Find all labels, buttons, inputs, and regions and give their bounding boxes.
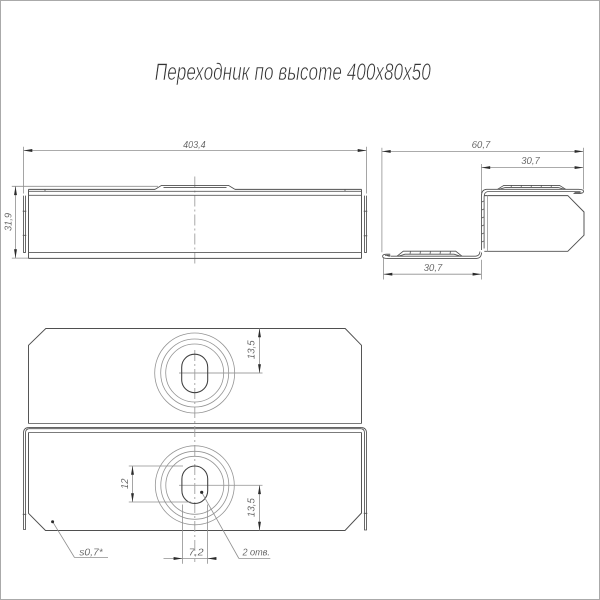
svg-text:13,5: 13,5 — [247, 340, 258, 360]
svg-text:60,7: 60,7 — [472, 140, 491, 151]
svg-text:403,4: 403,4 — [183, 140, 206, 151]
svg-text:12: 12 — [120, 478, 131, 489]
svg-text:30,7: 30,7 — [521, 156, 540, 167]
svg-text:31,9: 31,9 — [4, 212, 15, 231]
svg-text:30,7: 30,7 — [424, 263, 443, 274]
svg-text:13,5: 13,5 — [246, 498, 257, 518]
svg-text:7,2: 7,2 — [189, 547, 205, 558]
svg-text:Переходник по высоте 400х80х50: Переходник по высоте 400х80х50 — [155, 59, 431, 86]
svg-text:2 отв.: 2 отв. — [242, 547, 270, 558]
svg-text:s0,7*: s0,7* — [79, 547, 104, 558]
